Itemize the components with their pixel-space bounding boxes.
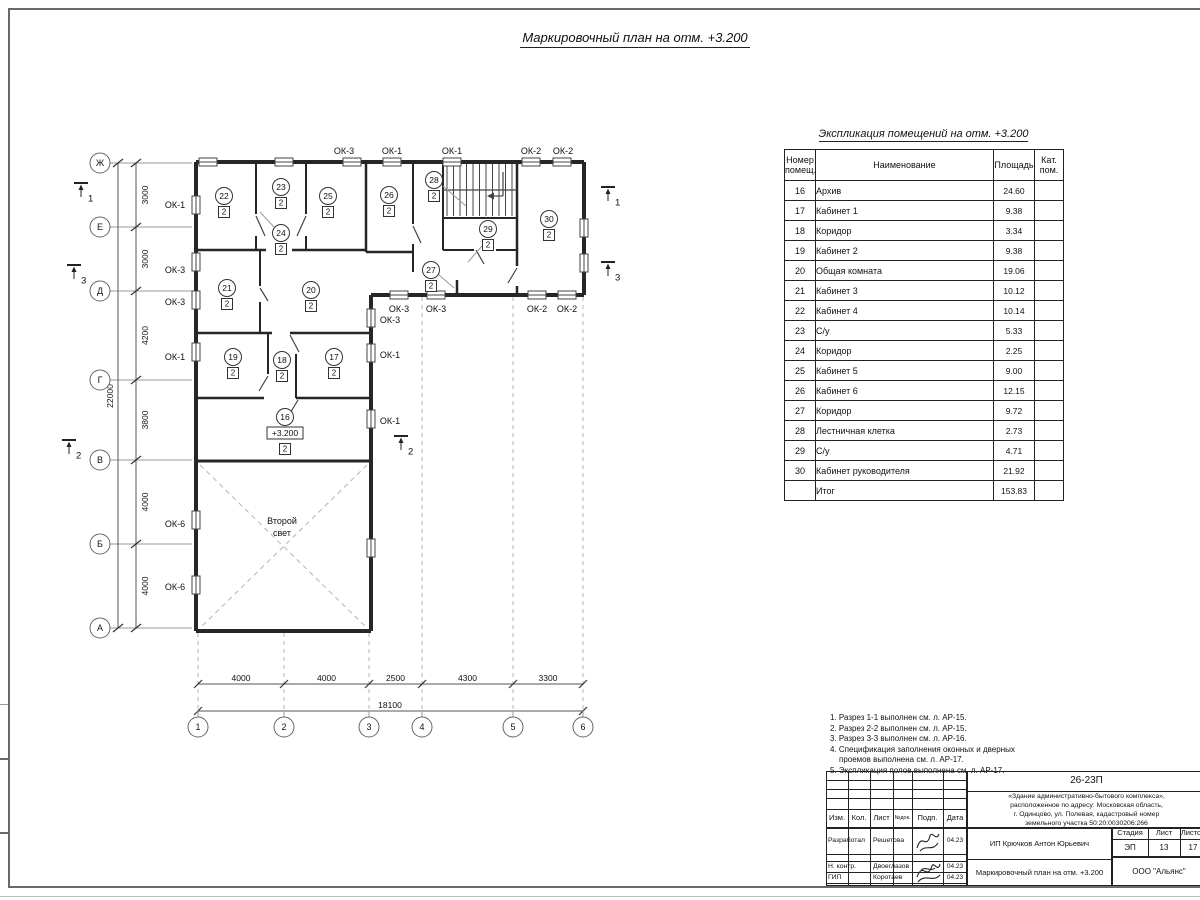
svg-text:2: 2 — [326, 208, 331, 217]
section-marker-1: 1 — [74, 183, 93, 205]
svg-text:ОК-1: ОК-1 — [382, 146, 402, 156]
room-name-cell: С/у — [816, 441, 994, 461]
plan-title: Маркировочный план на отм. +3.200 — [430, 30, 840, 45]
col-header-num: Номер помещ. — [785, 150, 816, 181]
svg-text:ОК-3: ОК-3 — [426, 304, 446, 314]
room-number-cell: 25 — [785, 361, 816, 381]
bottom-dimensions: 4000400025004300330018100 — [194, 673, 587, 715]
sign-name: Решетова — [871, 827, 914, 854]
explication-table: Номер помещ. Наименование Площадь Кат. п… — [784, 149, 1064, 501]
room-number-cell: 18 — [785, 221, 816, 241]
svg-text:3: 3 — [615, 273, 620, 284]
room-cat-cell — [1035, 301, 1064, 321]
svg-text:3000: 3000 — [140, 185, 150, 204]
table-row: 27Коридор9.72 — [785, 401, 1064, 421]
table-row: 25Кабинет 59.00 — [785, 361, 1064, 381]
table-row: 30Кабинет руководителя21.92 — [785, 461, 1064, 481]
room-area-cell: 2.25 — [994, 341, 1035, 361]
room-marker-26: 262 — [381, 187, 398, 217]
room-marker-30: 302 — [541, 211, 558, 241]
tb-header-list: Лист — [870, 809, 893, 827]
svg-text:4000: 4000 — [140, 492, 150, 511]
svg-text:2: 2 — [486, 241, 491, 250]
room-cat-cell — [1035, 321, 1064, 341]
col-header-cat: Кат. пом. — [1035, 150, 1064, 181]
svg-text:19: 19 — [228, 352, 238, 362]
svg-text:17: 17 — [329, 352, 339, 362]
room-marker-19: 192 — [225, 349, 242, 379]
room-name-cell: Кабинет 6 — [816, 381, 994, 401]
room-marker-24: 242 — [273, 225, 290, 255]
tb-header-izm: Изм. — [826, 809, 848, 827]
tb-header-kol: Кол. — [848, 809, 870, 827]
svg-text:Б: Б — [97, 539, 103, 549]
svg-text:2: 2 — [429, 282, 434, 291]
sign-date: 04.23 — [943, 827, 967, 854]
table-row: 19Кабинет 29.38 — [785, 241, 1064, 261]
svg-text:1: 1 — [88, 194, 93, 205]
room-area-cell: 3.34 — [994, 221, 1035, 241]
sign-name: Коротаев — [871, 872, 914, 883]
svg-text:+3.200: +3.200 — [272, 428, 299, 438]
sign-date: 04.23 — [943, 872, 967, 883]
room-area-cell: 153.83 — [994, 481, 1035, 501]
section-marker-1: 1 — [601, 187, 620, 209]
svg-text:4000: 4000 — [232, 673, 251, 683]
note-line: 1. Разрез 1-1 выполнен см. л. АР-15. — [830, 713, 1015, 724]
room-cat-cell — [1035, 281, 1064, 301]
room-cat-cell — [1035, 421, 1064, 441]
room-name-cell: Кабинет 5 — [816, 361, 994, 381]
room-area-cell: 12.15 — [994, 381, 1035, 401]
room-cat-cell — [1035, 221, 1064, 241]
client-name: ИП Крючков Антон Юрьевич — [967, 828, 1112, 859]
svg-text:2: 2 — [432, 192, 437, 201]
room-name-cell: Кабинет 2 — [816, 241, 994, 261]
room-marker-25: 252 — [320, 188, 337, 218]
room-area-cell: 21.92 — [994, 461, 1035, 481]
room-marker-27: 272 — [423, 262, 440, 292]
svg-text:23: 23 — [276, 182, 286, 192]
sign-role: Разработал — [826, 827, 872, 854]
svg-text:ОК-3: ОК-3 — [165, 265, 185, 275]
sheet-value: 13 — [1148, 839, 1180, 856]
room-cat-cell — [1035, 481, 1064, 501]
room-name-cell: Кабинет 1 — [816, 201, 994, 221]
room-cat-cell — [1035, 381, 1064, 401]
room-marker-28: 282 — [426, 172, 443, 202]
room-name-cell: Кабинет 4 — [816, 301, 994, 321]
note-line: проемов выполнена см. л. АР-17. — [830, 755, 1015, 766]
company-name: ООО "Альянс" — [1112, 858, 1200, 886]
room-number-cell: 29 — [785, 441, 816, 461]
svg-text:ОК-3: ОК-3 — [334, 146, 354, 156]
svg-text:2: 2 — [76, 451, 81, 462]
svg-text:3000: 3000 — [140, 249, 150, 268]
svg-text:ОК-3: ОК-3 — [165, 297, 185, 307]
svg-text:3: 3 — [81, 276, 86, 287]
sign-role: Н. контр. — [826, 861, 872, 872]
svg-text:ОК-2: ОК-2 — [553, 146, 573, 156]
section-marker-2: 2 — [394, 436, 413, 458]
room-area-cell: 5.33 — [994, 321, 1035, 341]
floor-plan: 3000300042003800400040002200040004000250… — [0, 0, 780, 770]
room-marker-29: 292 — [480, 221, 497, 251]
signature — [914, 828, 942, 854]
room-area-cell: 10.14 — [994, 301, 1035, 321]
room-number-cell: 20 — [785, 261, 816, 281]
table-header-row: Номер помещ. Наименование Площадь Кат. п… — [785, 150, 1064, 181]
tb-header-ndok: №док. — [893, 809, 912, 827]
svg-text:2: 2 — [231, 369, 236, 378]
stage-header: Стадия — [1112, 827, 1148, 839]
room-cat-cell — [1035, 361, 1064, 381]
table-row: 24Коридор2.25 — [785, 341, 1064, 361]
svg-text:2: 2 — [283, 445, 288, 454]
svg-text:6: 6 — [580, 722, 585, 732]
sign-name: Двоеглазов — [871, 861, 914, 872]
svg-text:26: 26 — [384, 190, 394, 200]
svg-text:4300: 4300 — [458, 673, 477, 683]
svg-text:18100: 18100 — [378, 700, 402, 710]
sheet-edge-bottom — [0, 896, 1200, 897]
svg-text:Второй: Второй — [267, 516, 297, 526]
room-cat-cell — [1035, 341, 1064, 361]
table-row: 28Лестничная клетка2.73 — [785, 421, 1064, 441]
svg-text:4000: 4000 — [140, 576, 150, 595]
room-area-cell: 9.38 — [994, 241, 1035, 261]
room-cat-cell — [1035, 441, 1064, 461]
svg-text:2: 2 — [309, 302, 314, 311]
room-cat-cell — [1035, 181, 1064, 201]
table-row: 17Кабинет 19.38 — [785, 201, 1064, 221]
note-line: 4. Спецификация заполнения оконных и две… — [830, 745, 1015, 756]
stage-value: ЭП — [1112, 839, 1148, 856]
room-area-cell: 19.06 — [994, 261, 1035, 281]
svg-text:ОК-1: ОК-1 — [165, 200, 185, 210]
grid-lines — [110, 163, 583, 716]
windows — [192, 158, 588, 594]
room-cat-cell — [1035, 261, 1064, 281]
svg-text:4: 4 — [419, 722, 424, 732]
svg-text:29: 29 — [483, 224, 493, 234]
room-name-cell: Кабинет руководителя — [816, 461, 994, 481]
svg-text:2: 2 — [547, 231, 552, 240]
project-description-line: расположенное по адресу: Московская обла… — [967, 801, 1200, 810]
tb-doc-title: Маркировочный план на отм. +3.200 — [967, 860, 1112, 886]
walls — [196, 162, 584, 631]
svg-text:ОК-1: ОК-1 — [165, 352, 185, 362]
tb-header-podp: Подп. — [912, 809, 943, 827]
svg-text:2: 2 — [387, 207, 392, 216]
svg-text:Д: Д — [97, 286, 103, 296]
table-row: 16Архив24.60 — [785, 181, 1064, 201]
sign-role: ГИП — [826, 872, 872, 883]
room-area-cell: 9.00 — [994, 361, 1035, 381]
svg-text:5: 5 — [510, 722, 515, 732]
explication-title: Экспликация помещений на отм. +3.200 — [784, 128, 1063, 140]
col-header-name: Наименование — [816, 150, 994, 181]
room-name-cell: Итог — [816, 481, 994, 501]
room-name-cell: Общая комната — [816, 261, 994, 281]
svg-text:2: 2 — [225, 300, 230, 309]
table-row: 26Кабинет 612.15 — [785, 381, 1064, 401]
svg-text:свет: свет — [273, 528, 291, 538]
svg-text:3: 3 — [366, 722, 371, 732]
table-row: 22Кабинет 410.14 — [785, 301, 1064, 321]
svg-text:28: 28 — [429, 175, 439, 185]
svg-text:ОК-1: ОК-1 — [380, 350, 400, 360]
room-number-cell: 23 — [785, 321, 816, 341]
table-row: Итог153.83 — [785, 481, 1064, 501]
svg-text:18: 18 — [277, 355, 287, 365]
table-row: 20Общая комната19.06 — [785, 261, 1064, 281]
note-line: 2. Разрез 2-2 выполнен см. л. АР-15. — [830, 724, 1015, 735]
room-marker-18: 182 — [274, 352, 291, 382]
notes: 1. Разрез 1-1 выполнен см. л. АР-15.2. Р… — [830, 713, 1015, 776]
room-area-cell: 9.38 — [994, 201, 1035, 221]
sheets-header: Листов — [1180, 827, 1200, 839]
svg-text:24: 24 — [276, 228, 286, 238]
svg-text:4200: 4200 — [140, 326, 150, 345]
svg-text:2: 2 — [222, 208, 227, 217]
svg-text:ОК-6: ОК-6 — [165, 519, 185, 529]
room-number-cell: 28 — [785, 421, 816, 441]
room-marker-17: 172 — [326, 349, 343, 379]
svg-text:В: В — [97, 455, 103, 465]
svg-text:Е: Е — [97, 222, 103, 232]
section-marker-3: 3 — [67, 265, 86, 287]
svg-text:2: 2 — [408, 447, 413, 458]
room-number-cell: 27 — [785, 401, 816, 421]
room-area-cell: 10.12 — [994, 281, 1035, 301]
room-name-cell: Кабинет 3 — [816, 281, 994, 301]
svg-text:2: 2 — [281, 722, 286, 732]
room-area-cell: 2.73 — [994, 421, 1035, 441]
table-row: 18Коридор3.34 — [785, 221, 1064, 241]
room-number-cell: 19 — [785, 241, 816, 261]
svg-text:27: 27 — [426, 265, 436, 275]
room-cat-cell — [1035, 461, 1064, 481]
svg-text:Г: Г — [98, 375, 103, 385]
project-description-line: «Здание административно-бытового комплек… — [967, 792, 1200, 801]
drawing-sheet: { "plan": { "title": "Маркировочный план… — [0, 0, 1200, 900]
svg-text:ОК-3: ОК-3 — [380, 315, 400, 325]
room-number-cell: 22 — [785, 301, 816, 321]
room-number-cell: 26 — [785, 381, 816, 401]
room-cat-cell — [1035, 241, 1064, 261]
room-name-cell: Коридор — [816, 401, 994, 421]
room-name-cell: Архив — [816, 181, 994, 201]
doc-code: 26-23П — [967, 771, 1200, 791]
table-row: 29С/у4.71 — [785, 441, 1064, 461]
room-number-cell: 30 — [785, 461, 816, 481]
room-number-cell: 21 — [785, 281, 816, 301]
svg-text:ОК-1: ОК-1 — [442, 146, 462, 156]
svg-text:1: 1 — [195, 722, 200, 732]
section-marker-3: 3 — [601, 262, 620, 284]
title-block: 26-23П «Здание административно-бытового … — [826, 771, 1200, 886]
section-marker-2: 2 — [62, 440, 81, 462]
staircase — [443, 164, 517, 216]
room-marker-21: 212 — [219, 280, 236, 310]
second-light: Второйсвет — [200, 465, 367, 628]
svg-text:ОК-6: ОК-6 — [165, 582, 185, 592]
svg-text:А: А — [97, 623, 103, 633]
room-area-cell: 9.72 — [994, 401, 1035, 421]
svg-text:ОК-1: ОК-1 — [380, 416, 400, 426]
svg-text:1: 1 — [615, 198, 620, 209]
sheet-header: Лист — [1148, 827, 1180, 839]
svg-text:2: 2 — [279, 199, 284, 208]
svg-text:ОК-2: ОК-2 — [557, 304, 577, 314]
signature — [914, 859, 942, 885]
svg-text:ОК-2: ОК-2 — [521, 146, 541, 156]
room-marker-22: 222 — [216, 188, 233, 218]
svg-text:2: 2 — [280, 372, 285, 381]
frame-bottom-line — [8, 886, 1200, 888]
room-marker-23: 232 — [273, 179, 290, 209]
left-dimensions: 30003000420038004000400022000 — [105, 159, 150, 632]
svg-text:2: 2 — [279, 245, 284, 254]
room-cat-cell — [1035, 401, 1064, 421]
tb-header-data: Дата — [943, 809, 967, 827]
fold-mark — [0, 832, 8, 834]
room-number-cell: 16 — [785, 181, 816, 201]
svg-text:16: 16 — [280, 412, 290, 422]
sheets-value: 17 — [1180, 839, 1200, 856]
table-row: 21Кабинет 310.12 — [785, 281, 1064, 301]
room-name-cell: Коридор — [816, 221, 994, 241]
room-name-cell: Лестничная клетка — [816, 421, 994, 441]
project-description-line: г. Одинцово, ул. Полевая, кадастровый но… — [967, 810, 1200, 819]
note-line: 3. Разрез 3-3 выполнен см. л. АР-16. — [830, 734, 1015, 745]
svg-text:ОК-3: ОК-3 — [389, 304, 409, 314]
col-header-area: Площадь — [994, 150, 1035, 181]
room-area-cell: 4.71 — [994, 441, 1035, 461]
svg-text:3300: 3300 — [539, 673, 558, 683]
svg-text:22: 22 — [219, 191, 229, 201]
room-area-cell: 24.60 — [994, 181, 1035, 201]
svg-text:3800: 3800 — [140, 410, 150, 429]
svg-text:21: 21 — [222, 283, 232, 293]
room-number-cell: 17 — [785, 201, 816, 221]
svg-text:Ж: Ж — [96, 158, 105, 168]
sign-date: 04.23 — [943, 861, 967, 872]
room-cat-cell — [1035, 201, 1064, 221]
room-name-cell: С/у — [816, 321, 994, 341]
svg-text:4000: 4000 — [317, 673, 336, 683]
room-number-cell: 24 — [785, 341, 816, 361]
svg-text:2: 2 — [332, 369, 337, 378]
svg-text:25: 25 — [323, 191, 333, 201]
svg-text:30: 30 — [544, 214, 554, 224]
svg-text:ОК-2: ОК-2 — [527, 304, 547, 314]
room-marker-16: 16+3.2002 — [267, 409, 303, 455]
room-name-cell: Коридор — [816, 341, 994, 361]
table-row: 23С/у5.33 — [785, 321, 1064, 341]
room-number-cell — [785, 481, 816, 501]
room-marker-20: 202 — [303, 282, 320, 312]
svg-text:20: 20 — [306, 285, 316, 295]
svg-text:2500: 2500 — [386, 673, 405, 683]
